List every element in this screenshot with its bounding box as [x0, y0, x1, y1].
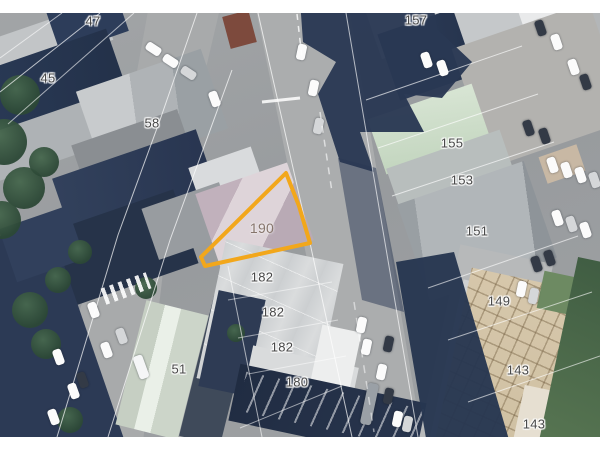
parcel-labels-layer: 4745581571551531511491431431901821821821… — [0, 0, 600, 450]
parcel-label: 153 — [451, 173, 474, 188]
parcel-label: 143 — [523, 417, 546, 432]
map-canvas[interactable]: 4745581571551531511491431431901821821821… — [0, 0, 600, 450]
selected-parcel-label: 190 — [250, 220, 274, 236]
parcel-label: 182 — [271, 340, 294, 355]
parcel-label: 151 — [466, 224, 489, 239]
parcel-label: 155 — [441, 136, 464, 151]
parcel-label: 149 — [488, 294, 511, 309]
parcel-label: 47 — [85, 14, 100, 29]
parcel-label: 45 — [40, 71, 55, 86]
parcel-label: 143 — [507, 363, 530, 378]
parcel-label: 157 — [405, 13, 428, 28]
parcel-label: 51 — [171, 362, 186, 377]
letterbox-top — [0, 0, 600, 13]
letterbox-bottom — [0, 437, 600, 450]
parcel-label: 182 — [251, 270, 274, 285]
parcel-label: 58 — [144, 116, 159, 131]
parcel-label: 180 — [286, 375, 309, 390]
parcel-label: 182 — [262, 305, 285, 320]
